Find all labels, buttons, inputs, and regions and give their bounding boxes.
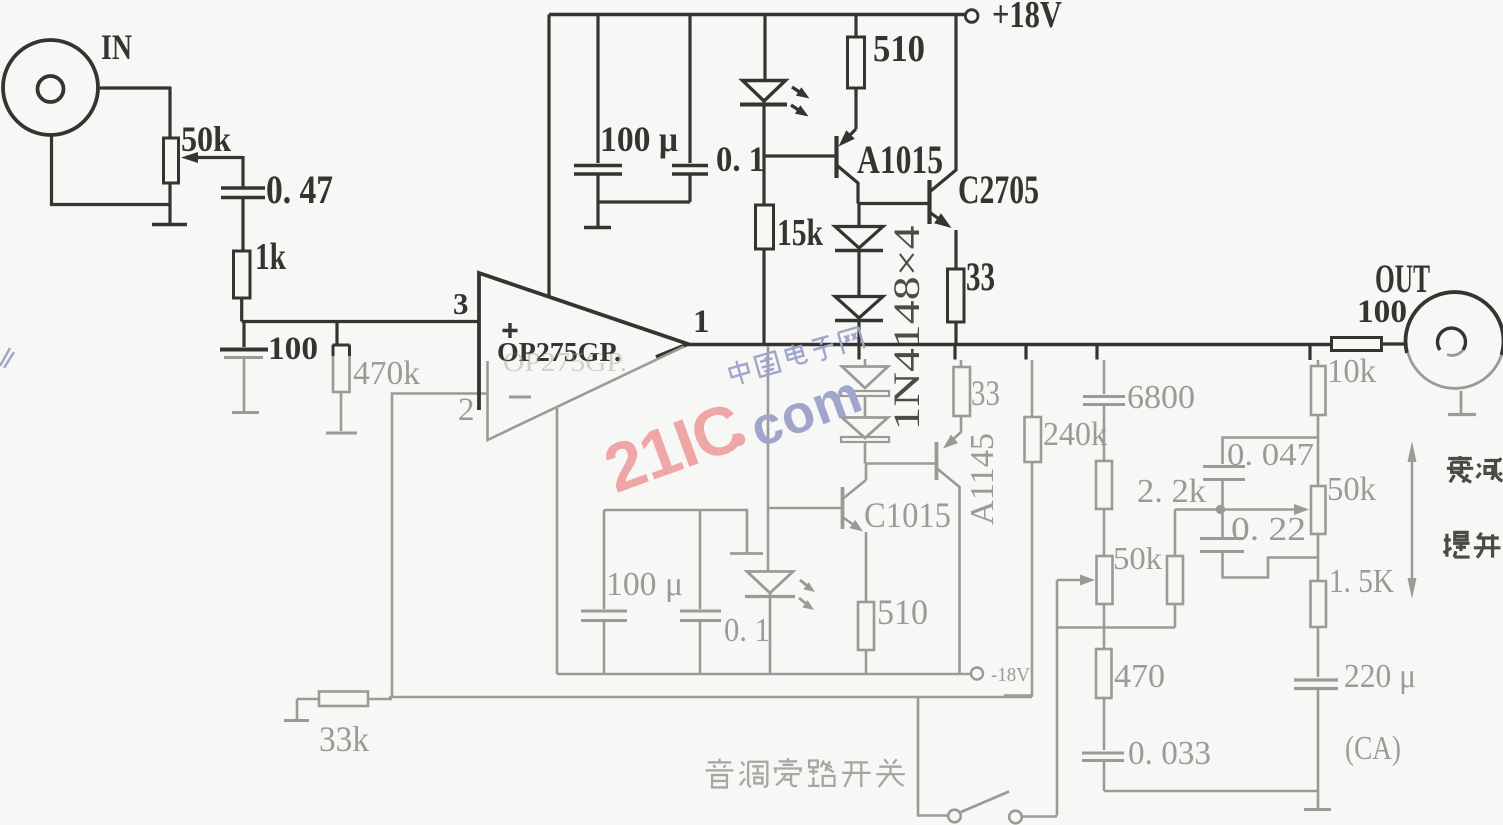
svg-text:100 μ: 100 μ: [600, 119, 678, 159]
svg-text:(CA): (CA): [1345, 730, 1401, 767]
svg-text:0. 047: 0. 047: [1227, 436, 1314, 472]
svg-text:2. 2k: 2. 2k: [1137, 473, 1206, 510]
svg-text:-18V: -18V: [991, 664, 1031, 686]
svg-text:510: 510: [877, 592, 928, 632]
svg-text:1N4148×4: 1N4148×4: [887, 226, 928, 431]
svg-text:10k: 10k: [1327, 353, 1376, 390]
svg-text:220 μ: 220 μ: [1344, 658, 1416, 695]
svg-text:+18V: +18V: [992, 0, 1062, 36]
svg-text:A1145: A1145: [964, 433, 1001, 525]
svg-text:A1015: A1015: [857, 137, 943, 182]
svg-text:2: 2: [458, 392, 475, 428]
svg-text:50k: 50k: [181, 119, 231, 159]
svg-text:470k: 470k: [353, 355, 420, 392]
svg-text:15k: 15k: [777, 212, 824, 254]
svg-text:33: 33: [966, 254, 995, 299]
svg-text:33k: 33k: [319, 719, 369, 759]
svg-text:OUT: OUT: [1375, 256, 1430, 301]
svg-text:100 μ: 100 μ: [606, 566, 683, 603]
svg-text:1. 5K: 1. 5K: [1329, 563, 1394, 600]
svg-text:6800: 6800: [1127, 379, 1195, 416]
svg-text:100: 100: [268, 331, 318, 367]
svg-text:1: 1: [693, 304, 710, 340]
svg-text:3: 3: [453, 286, 469, 321]
svg-text:0. 1: 0. 1: [724, 612, 770, 649]
svg-text:510: 510: [873, 28, 925, 70]
svg-text:0. 22: 0. 22: [1231, 511, 1306, 548]
svg-text:240k: 240k: [1043, 416, 1107, 453]
svg-text:50k: 50k: [1113, 540, 1162, 576]
svg-text:IN: IN: [101, 27, 132, 67]
svg-text:1k: 1k: [255, 236, 287, 278]
svg-text:0. 47: 0. 47: [266, 167, 333, 212]
svg-text:C1015: C1015: [864, 495, 951, 535]
svg-text:0. 033: 0. 033: [1128, 735, 1211, 772]
svg-text:33: 33: [971, 373, 1000, 413]
svg-text:OP275GP.: OP275GP.: [503, 347, 627, 377]
svg-text:470: 470: [1114, 658, 1165, 695]
svg-text:50k: 50k: [1327, 471, 1376, 508]
svg-text:C2705: C2705: [958, 167, 1039, 212]
svg-text:0. 1: 0. 1: [716, 139, 765, 179]
